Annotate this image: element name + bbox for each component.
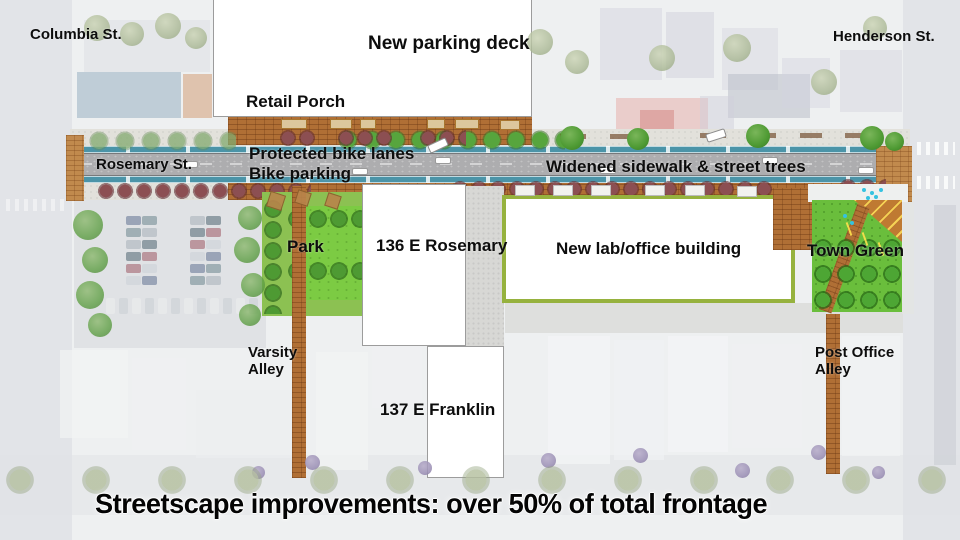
building-entry-stoop [685, 185, 705, 196]
street-tree [560, 126, 584, 150]
varsity-alley-line2: Alley [248, 361, 284, 378]
building-entry-stoop [515, 185, 535, 196]
building-entry-stoop [591, 185, 611, 196]
planter-box [455, 119, 479, 129]
splash-pad-dot [866, 196, 870, 200]
columbia-street-label: Columbia St. [30, 26, 122, 43]
planter-box [360, 119, 376, 129]
building-136-label: 136 E Rosemary [376, 236, 507, 256]
delivery-truck [427, 137, 449, 154]
building-entry-stoop [737, 186, 757, 197]
building-137-label: 137 E Franklin [380, 400, 495, 420]
street-tree [241, 273, 265, 297]
street-tree [860, 126, 884, 150]
planter-box [500, 120, 520, 130]
splash-pad-dot [862, 188, 866, 192]
street-tree [155, 13, 181, 39]
rosemary-street-label: Rosemary St. [96, 156, 192, 173]
street-tree [649, 45, 675, 71]
park-shelter [324, 192, 342, 210]
street-tree [627, 128, 649, 150]
street-tree [82, 247, 108, 273]
lab-building-label: New lab/office building [556, 239, 741, 259]
protected-bike-lanes-label: Protected bike lanes [249, 144, 414, 164]
retail-porch-label: Retail Porch [246, 92, 345, 112]
splash-pad-dot [843, 214, 847, 218]
henderson-street-label: Henderson St. [833, 28, 935, 45]
street-tree [73, 210, 103, 240]
varsity-alley-label: Varsity Alley [248, 344, 297, 379]
splash-pad-dot [850, 221, 854, 225]
site-plan-map: Columbia St. Henderson St. New parking d… [0, 0, 960, 540]
town-green-label: Town Green [807, 241, 904, 261]
parking-deck-label: New parking deck [368, 33, 530, 55]
street-tree [185, 27, 207, 49]
planter-box [281, 119, 307, 129]
varsity-alley-line1: Varsity [248, 344, 297, 361]
splash-pad-dot [879, 188, 883, 192]
street-tree [746, 124, 770, 148]
street-tree [527, 29, 553, 55]
park-label: Park [287, 237, 324, 257]
building-entry-stoop [645, 185, 665, 196]
street-tree [811, 69, 837, 95]
car-on-road [858, 167, 874, 174]
street-tree [885, 132, 904, 151]
widened-sidewalk-label: Widened sidewalk & street trees [546, 157, 806, 177]
delivery-truck [705, 128, 727, 143]
street-tree [234, 237, 260, 263]
street-tree [76, 281, 104, 309]
caption-title: Streetscape improvements: over 50% of to… [95, 488, 767, 520]
splash-pad-dot [874, 195, 878, 199]
street-tree [565, 50, 589, 74]
building-entry-stoop [553, 185, 573, 196]
park-shelter [294, 189, 312, 207]
car-on-road [352, 168, 368, 175]
street-tree [120, 22, 144, 46]
post-office-alley-label: Post Office Alley [815, 344, 894, 379]
post-office-alley-line1: Post Office [815, 344, 894, 361]
planter-box [427, 119, 445, 129]
street-tree [238, 206, 262, 230]
street-tree [723, 34, 751, 62]
sidewalk-planter-bar [800, 133, 822, 138]
car-on-road [435, 157, 451, 164]
splash-pad-dot [870, 191, 874, 195]
post-office-alley-line2: Alley [815, 361, 851, 378]
bike-parking-label: Bike parking [249, 164, 351, 184]
street-tree [239, 304, 261, 326]
park-shelter [266, 191, 286, 211]
planter-box [330, 119, 352, 129]
street-tree [88, 313, 112, 337]
